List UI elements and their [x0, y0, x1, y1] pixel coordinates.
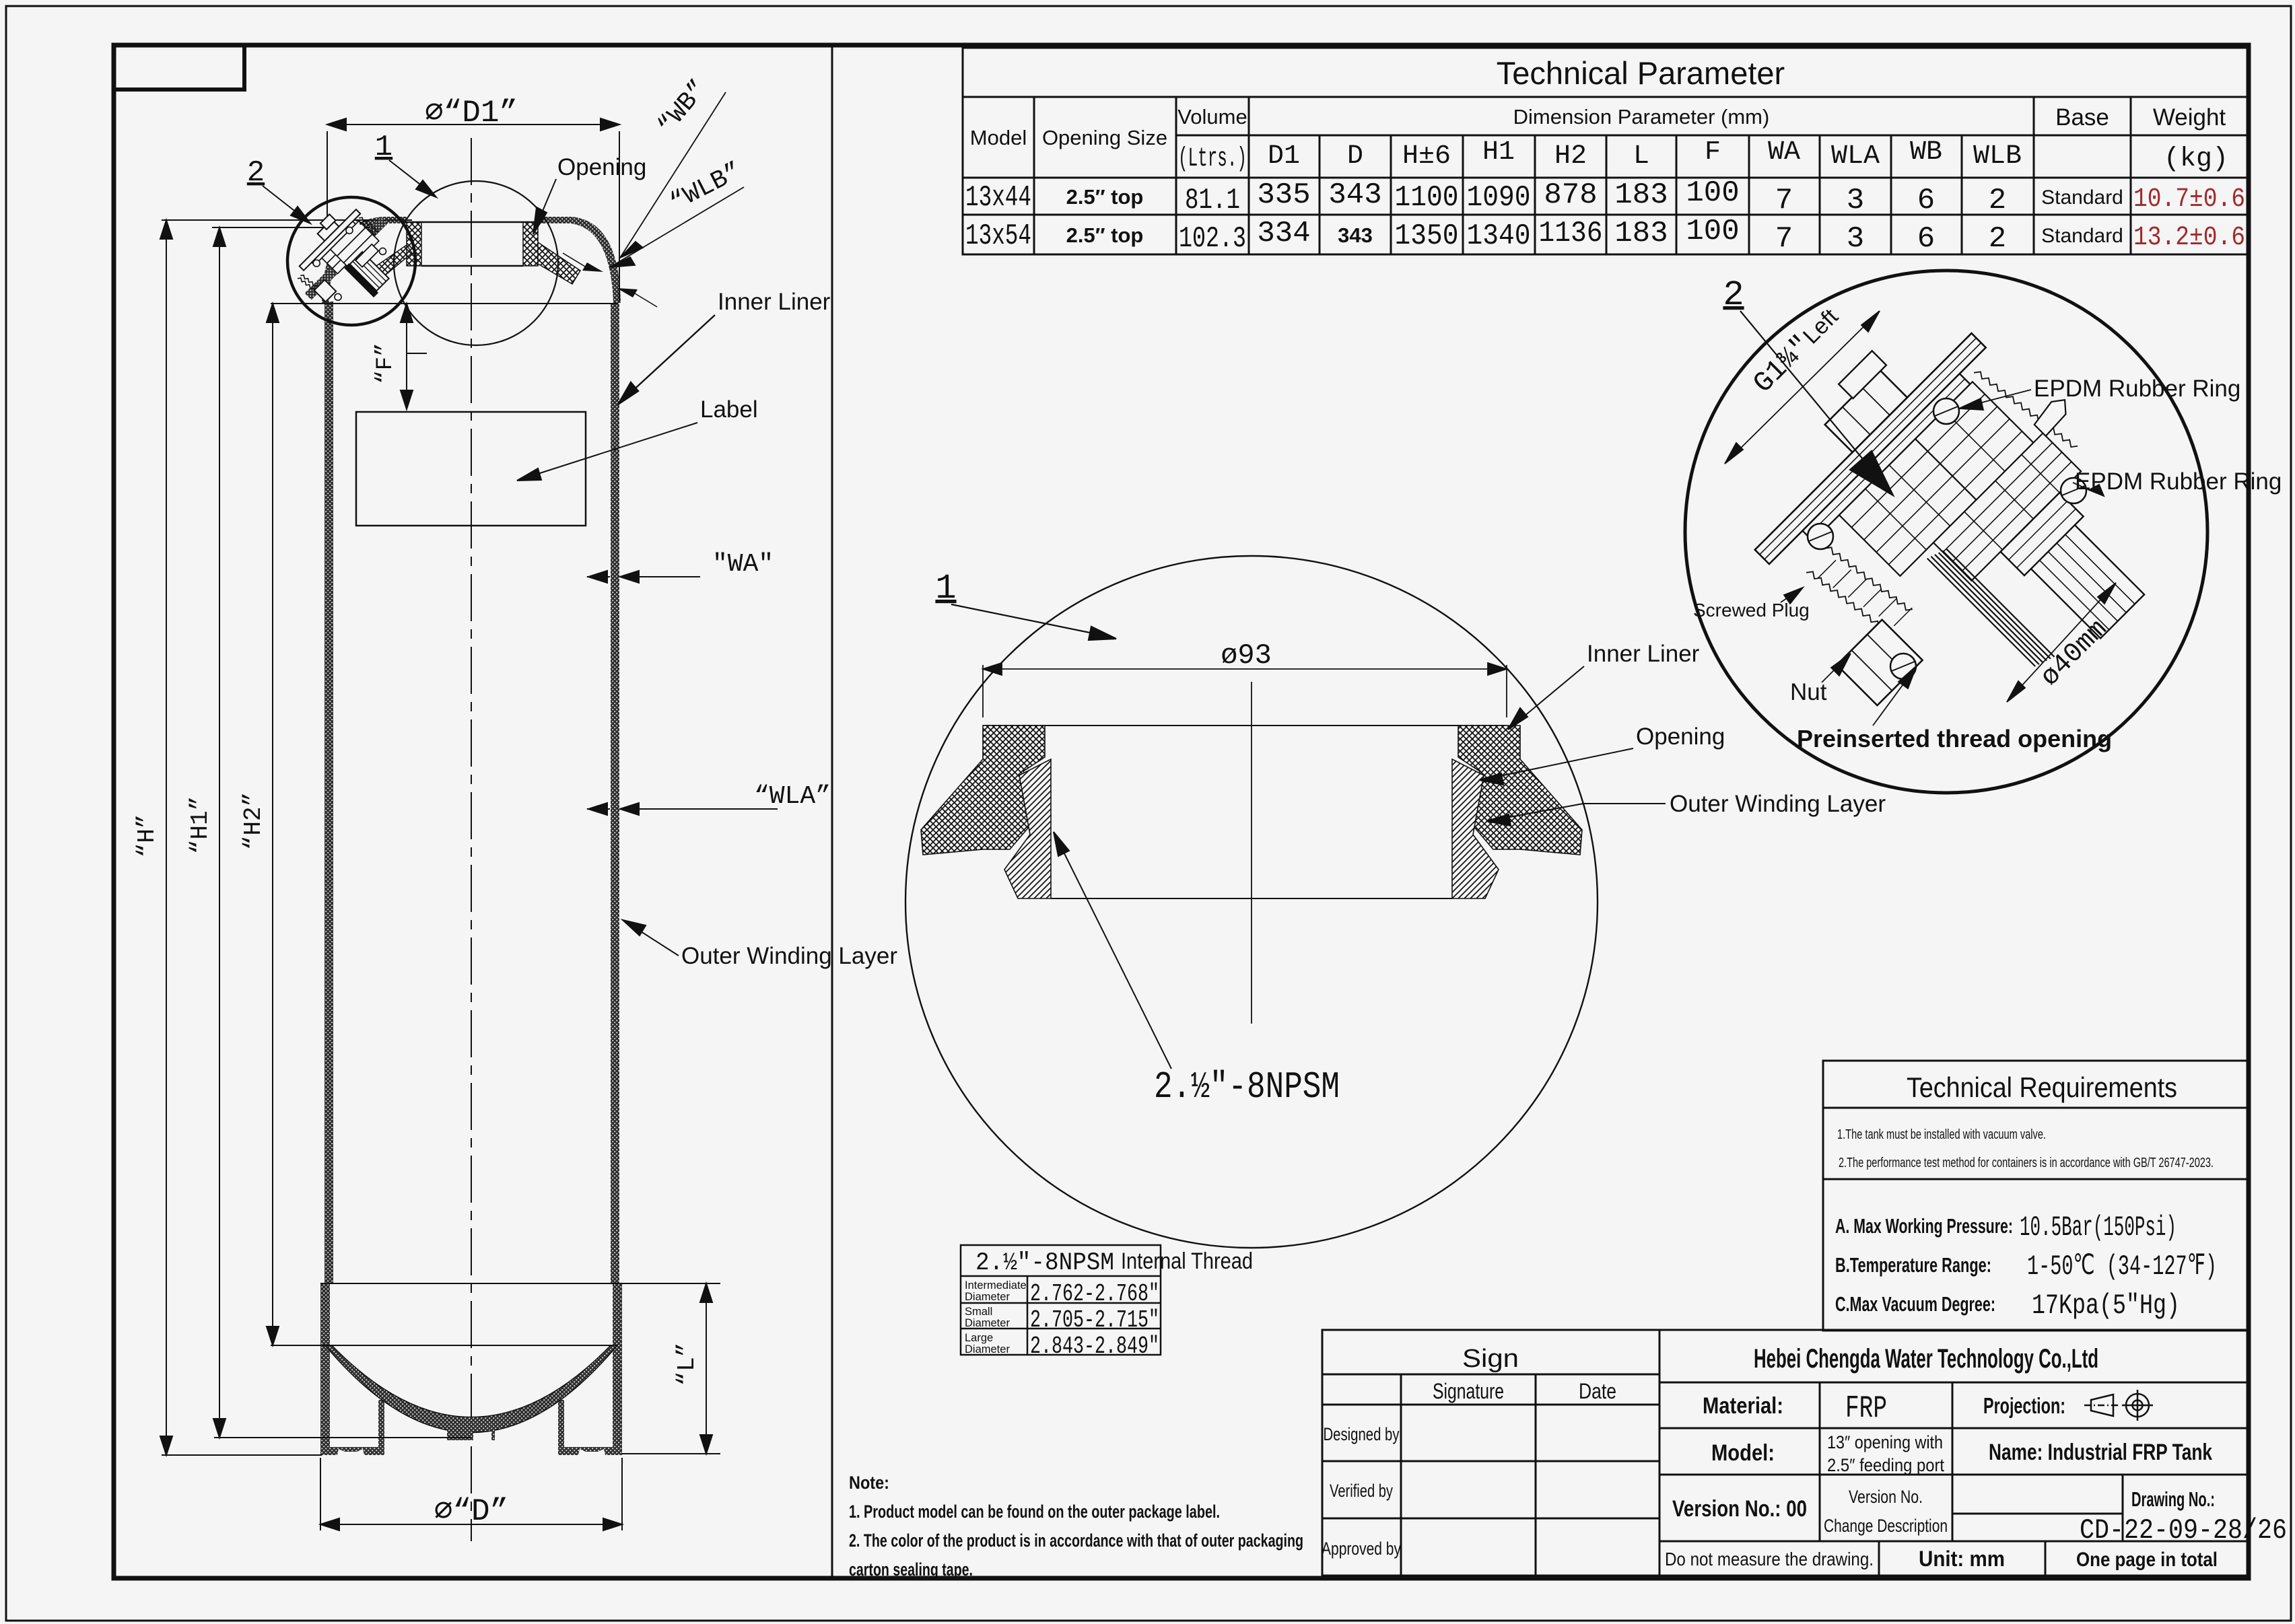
- svg-text:81.1: 81.1: [1185, 184, 1240, 217]
- svg-text:Model: Model: [970, 126, 1027, 149]
- svg-text:2.5″ top: 2.5″ top: [1066, 223, 1144, 247]
- svg-text:13″ opening with: 13″ opening with: [1827, 1432, 1943, 1452]
- svg-text:“F”: “F”: [373, 343, 399, 384]
- svg-text:Date: Date: [1579, 1379, 1616, 1403]
- svg-text:ø93: ø93: [1221, 639, 1272, 672]
- svg-text:2: 2: [1989, 222, 2006, 256]
- svg-text:2.762-2.768″: 2.762-2.768″: [1030, 1280, 1159, 1308]
- svg-text:∅“D1”: ∅“D1”: [425, 96, 518, 131]
- svg-text:carton sealing tape.: carton sealing tape.: [849, 1559, 973, 1580]
- svg-text:Diameter: Diameter: [965, 1317, 1010, 1329]
- svg-text:Model:: Model:: [1711, 1440, 1775, 1466]
- svg-text:Version No.: Version No.: [1849, 1487, 1923, 1507]
- svg-text:Outer Winding Layer: Outer Winding Layer: [1670, 791, 1886, 817]
- svg-text:Dimension Parameter (mm): Dimension Parameter (mm): [1513, 105, 1770, 129]
- svg-text:2.½″-8NPSM: 2.½″-8NPSM: [1154, 1065, 1340, 1108]
- svg-text:EPDM Rubber Ring: EPDM Rubber Ring: [2075, 468, 2282, 495]
- svg-text:Diameter: Diameter: [965, 1343, 1010, 1355]
- svg-text:13x54: 13x54: [965, 219, 1031, 253]
- svg-text:Base: Base: [2055, 104, 2109, 131]
- svg-text:Version No.: 00: Version No.: 00: [1672, 1496, 1807, 1522]
- svg-text:Large: Large: [965, 1332, 993, 1344]
- svg-text:A. Max Working Pressure:: A. Max Working Pressure:: [1835, 1214, 2013, 1238]
- svg-text:Approved by: Approved by: [1322, 1539, 1401, 1559]
- svg-text:1340: 1340: [1467, 219, 1531, 253]
- svg-text:Signature: Signature: [1433, 1379, 1504, 1403]
- svg-text:13.2±0.6: 13.2±0.6: [2133, 223, 2245, 253]
- svg-text:Projection:: Projection:: [1983, 1393, 2065, 1418]
- svg-text:“H”: “H”: [133, 814, 161, 858]
- svg-text:Change Description: Change Description: [1824, 1516, 1948, 1536]
- svg-text:Preinserted thread opening: Preinserted thread opening: [1797, 725, 2112, 752]
- svg-text:102.3: 102.3: [1179, 222, 1246, 256]
- svg-text:2.843-2.849″: 2.843-2.849″: [1030, 1333, 1159, 1360]
- svg-text:1350: 1350: [1395, 219, 1459, 253]
- svg-text:Standard: Standard: [2041, 225, 2123, 247]
- svg-text:Material:: Material:: [1703, 1393, 1783, 1419]
- svg-text:(Ltrs.): (Ltrs.): [1178, 144, 1247, 174]
- svg-text:6: 6: [1917, 222, 1935, 256]
- svg-text:(kg): (kg): [2164, 144, 2228, 174]
- svg-text:2: 2: [1989, 184, 2006, 217]
- svg-text:Volume: Volume: [1177, 105, 1247, 129]
- svg-text:2.5″ top: 2.5″ top: [1066, 185, 1144, 209]
- svg-text:Technical Parameter: Technical Parameter: [1497, 55, 1785, 91]
- svg-text:D: D: [1347, 141, 1363, 172]
- svg-text:Nut: Nut: [1790, 679, 1827, 705]
- svg-text:1: 1: [375, 131, 392, 164]
- svg-text:2.½″-8NPSM: 2.½″-8NPSM: [975, 1249, 1114, 1277]
- svg-text:L: L: [1633, 141, 1649, 172]
- svg-text:Label: Label: [700, 396, 758, 423]
- svg-text:H1: H1: [1482, 137, 1515, 168]
- svg-text:EPDM Rubber Ring: EPDM Rubber Ring: [2034, 376, 2240, 402]
- svg-text:Opening: Opening: [557, 154, 646, 180]
- svg-text:100: 100: [1686, 176, 1739, 210]
- svg-text:343: 343: [1338, 223, 1373, 247]
- svg-text:1: 1: [935, 569, 956, 608]
- svg-text:D1: D1: [1268, 141, 1300, 172]
- svg-text:100: 100: [1686, 215, 1739, 248]
- svg-text:Technical Requirements: Technical Requirements: [1907, 1071, 2177, 1103]
- svg-text:1136: 1136: [1539, 217, 1603, 250]
- svg-text:17Kpa(5″Hg): 17Kpa(5″Hg): [2032, 1290, 2180, 1322]
- svg-text:2.The performance test method: 2.The performance test method for contai…: [1839, 1156, 2214, 1170]
- svg-text:Inner Liner: Inner Liner: [718, 289, 831, 315]
- svg-text:One page in total: One page in total: [2076, 1549, 2218, 1571]
- svg-text:7: 7: [1775, 184, 1793, 217]
- svg-text:Outer Winding Layer: Outer Winding Layer: [681, 943, 897, 969]
- svg-text:Sign: Sign: [1462, 1345, 1519, 1373]
- svg-text:Drawing No.:: Drawing No.:: [2131, 1487, 2215, 1511]
- svg-text:Verified by: Verified by: [1330, 1481, 1393, 1501]
- svg-text:334: 334: [1257, 217, 1310, 250]
- svg-text:Unit: mm: Unit: mm: [1919, 1547, 2005, 1571]
- svg-text:1100: 1100: [1395, 181, 1459, 215]
- svg-text:Screwed Plug: Screwed Plug: [1693, 600, 1810, 621]
- svg-text:3: 3: [1847, 222, 1864, 256]
- svg-text:7: 7: [1775, 222, 1793, 256]
- svg-text:2: 2: [1723, 275, 1744, 315]
- svg-text:“WLA”: “WLA”: [754, 782, 831, 811]
- svg-text:6: 6: [1917, 184, 1935, 217]
- svg-text:WB: WB: [1910, 137, 1942, 168]
- svg-text:H2: H2: [1554, 141, 1587, 172]
- svg-text:B.Temperature Range:: B.Temperature Range:: [1835, 1253, 1991, 1277]
- svg-text:878: 878: [1544, 178, 1597, 212]
- svg-text:Diameter: Diameter: [965, 1291, 1010, 1303]
- svg-text:2. The color of the product is: 2. The color of the product is in accord…: [849, 1530, 1303, 1551]
- svg-text:13x44: 13x44: [965, 181, 1031, 215]
- svg-text:Small: Small: [965, 1306, 992, 1318]
- svg-text:1-50℃ (34-127℉): 1-50℃ (34-127℉): [2027, 1250, 2217, 1283]
- svg-text:2.705-2.715″: 2.705-2.715″: [1030, 1306, 1159, 1334]
- svg-text:WLB: WLB: [1973, 141, 2022, 172]
- svg-text:2.5″ feeding port: 2.5″ feeding port: [1827, 1455, 1944, 1475]
- svg-text:Designed by: Designed by: [1324, 1424, 1400, 1444]
- svg-text:H±6: H±6: [1402, 141, 1451, 172]
- svg-text:WLA: WLA: [1831, 141, 1880, 172]
- svg-text:Note:: Note:: [849, 1473, 889, 1493]
- svg-text:10.7±0.6: 10.7±0.6: [2133, 184, 2245, 215]
- svg-text:1.The tank must be installed w: 1.The tank must be installed with vacuum…: [1837, 1127, 2046, 1142]
- svg-text:Opening Size: Opening Size: [1042, 126, 1167, 149]
- svg-text:Weight: Weight: [2153, 104, 2226, 131]
- svg-text:CD-22-09-28/26: CD-22-09-28/26: [2080, 1514, 2287, 1547]
- svg-text:3: 3: [1847, 184, 1864, 217]
- svg-text:2: 2: [247, 156, 265, 190]
- svg-text:Inner Liner: Inner Liner: [1587, 641, 1700, 667]
- svg-text:335: 335: [1257, 178, 1310, 212]
- svg-text:C.Max Vacuum Degree:: C.Max Vacuum Degree:: [1835, 1292, 1995, 1316]
- svg-text:Do not measure the drawing.: Do not measure the drawing.: [1665, 1549, 1874, 1569]
- svg-text:FRP: FRP: [1845, 1391, 1887, 1426]
- svg-text:1. Product model can be found: 1. Product model can be found on the out…: [849, 1502, 1220, 1522]
- svg-text:“H2”: “H2”: [240, 792, 267, 850]
- svg-text:10.5Bar(150Psi): 10.5Bar(150Psi): [2020, 1211, 2177, 1244]
- svg-text:343: 343: [1328, 178, 1381, 212]
- svg-text:WA: WA: [1768, 137, 1800, 168]
- svg-text:Hebei Chengda Water Technology: Hebei Chengda Water Technology Co.,Ltd: [1754, 1344, 2098, 1374]
- svg-text:Intermediate: Intermediate: [965, 1279, 1027, 1292]
- svg-text:183: 183: [1614, 217, 1668, 250]
- svg-text:″WA″: ″WA″: [712, 550, 774, 579]
- svg-text:Internal Thread: Internal Thread: [1121, 1248, 1253, 1274]
- svg-text:Opening: Opening: [1636, 723, 1725, 750]
- svg-text:“H1”: “H1”: [186, 796, 214, 854]
- svg-text:183: 183: [1614, 178, 1668, 212]
- svg-text:∅“D”: ∅“D”: [434, 1494, 509, 1529]
- svg-text:F: F: [1705, 137, 1721, 168]
- svg-text:Standard: Standard: [2041, 186, 2123, 209]
- svg-text:“L”: “L”: [673, 1343, 701, 1386]
- svg-text:Name: Industrial FRP Tank: Name: Industrial FRP Tank: [1989, 1440, 2212, 1465]
- svg-text:1090: 1090: [1467, 181, 1531, 215]
